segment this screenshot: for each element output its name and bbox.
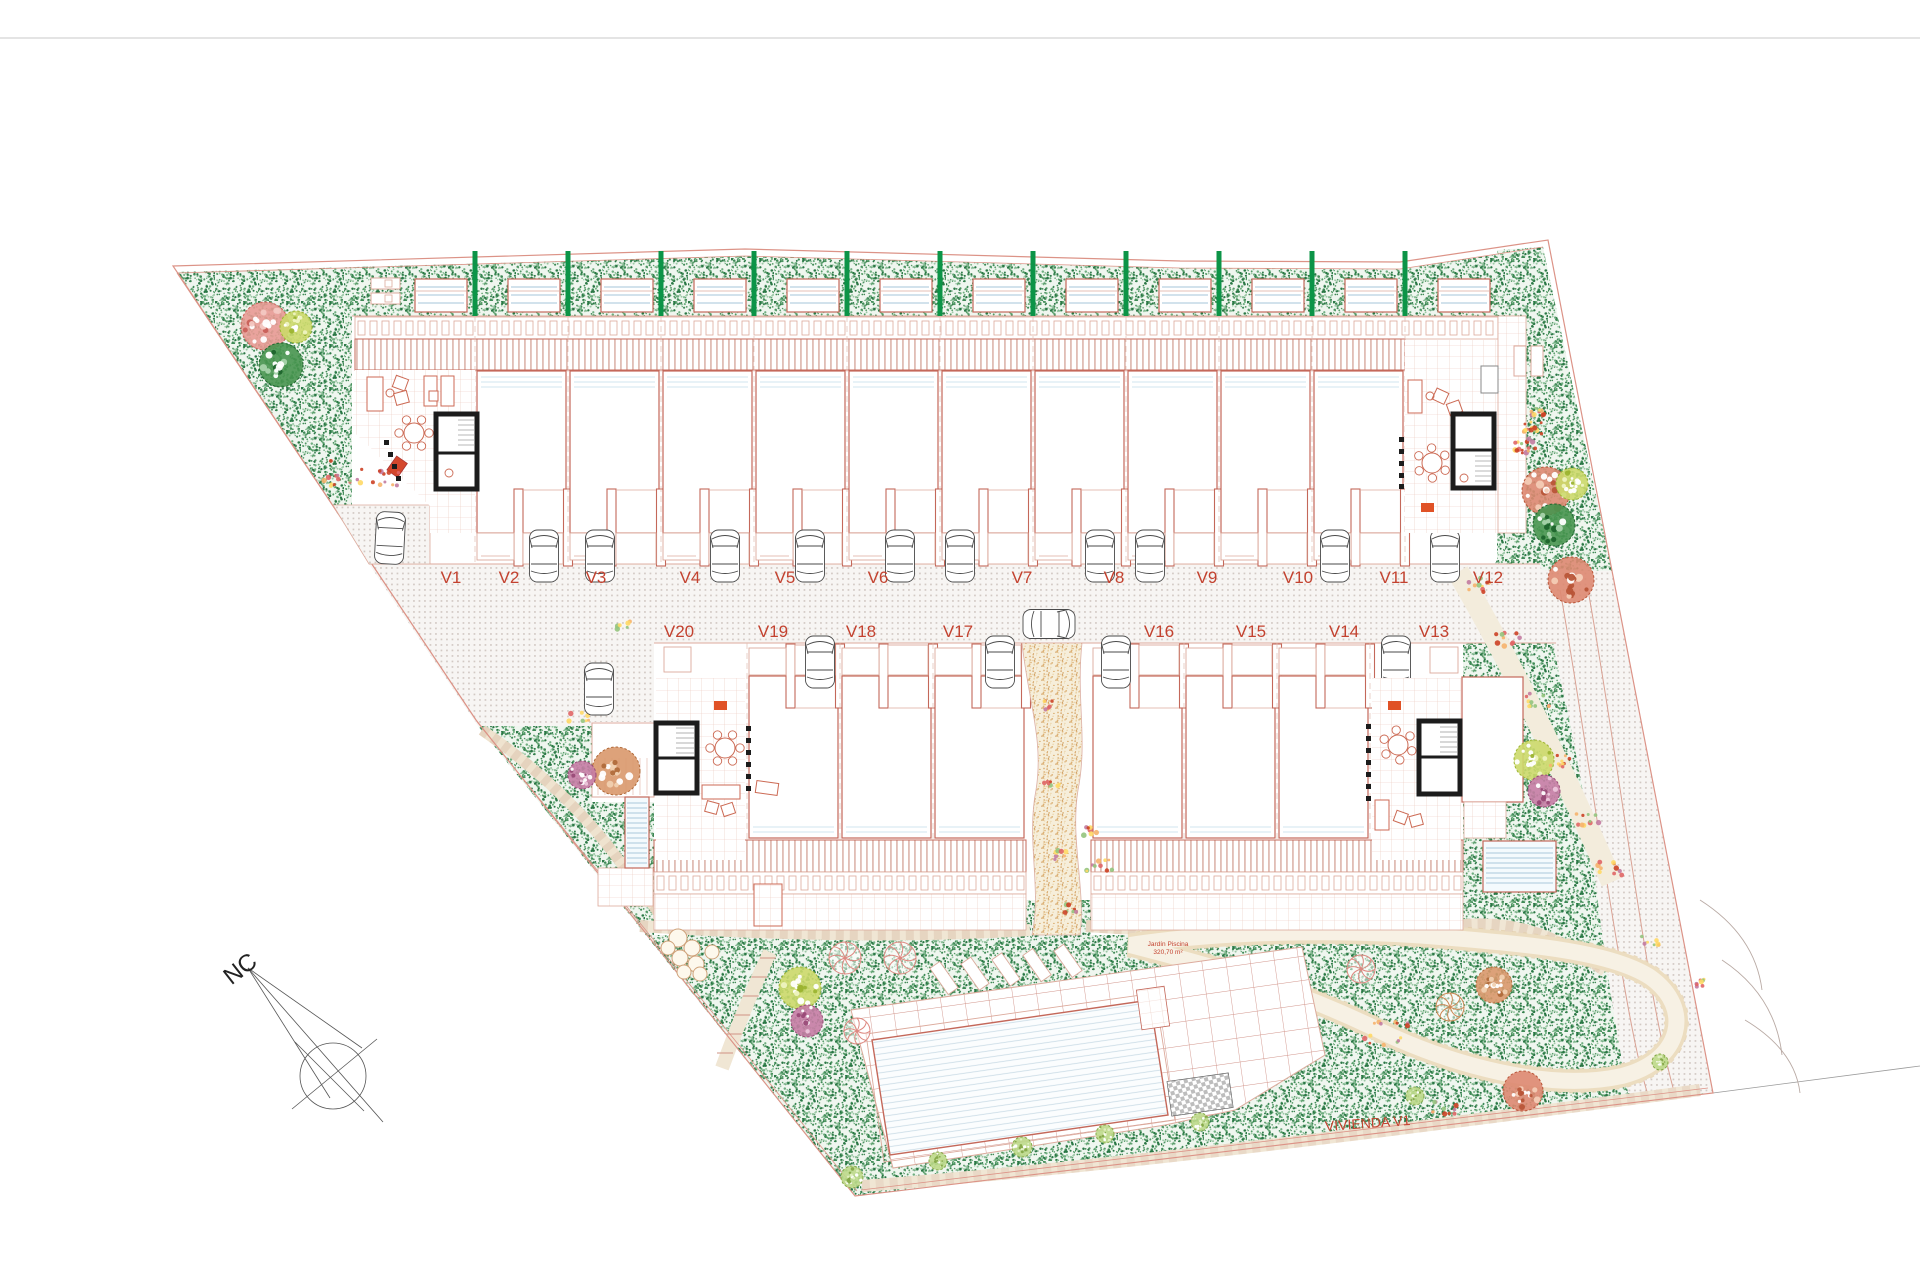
svg-text:V4: V4 [680,568,701,587]
svg-text:V12: V12 [1473,568,1503,587]
svg-text:V1: V1 [441,568,462,587]
svg-text:V10: V10 [1283,568,1313,587]
svg-text:V18: V18 [846,622,876,641]
svg-text:V3: V3 [586,568,607,587]
svg-text:320,70 m²: 320,70 m² [1153,949,1183,956]
svg-text:V17: V17 [943,622,973,641]
svg-text:V11: V11 [1380,568,1409,587]
svg-text:V14: V14 [1329,622,1359,641]
svg-text:V20: V20 [664,622,694,641]
svg-text:V2: V2 [499,568,520,587]
svg-text:V15: V15 [1236,622,1266,641]
svg-text:V13: V13 [1419,622,1449,641]
svg-text:V7: V7 [1012,568,1033,587]
svg-text:V5: V5 [775,568,796,587]
svg-text:V19: V19 [758,622,788,641]
svg-text:V16: V16 [1144,622,1174,641]
svg-text:Jardín Piscina: Jardín Piscina [1148,941,1189,948]
svg-text:V9: V9 [1197,568,1218,587]
svg-text:V8: V8 [1104,568,1125,587]
svg-text:V6: V6 [868,568,889,587]
